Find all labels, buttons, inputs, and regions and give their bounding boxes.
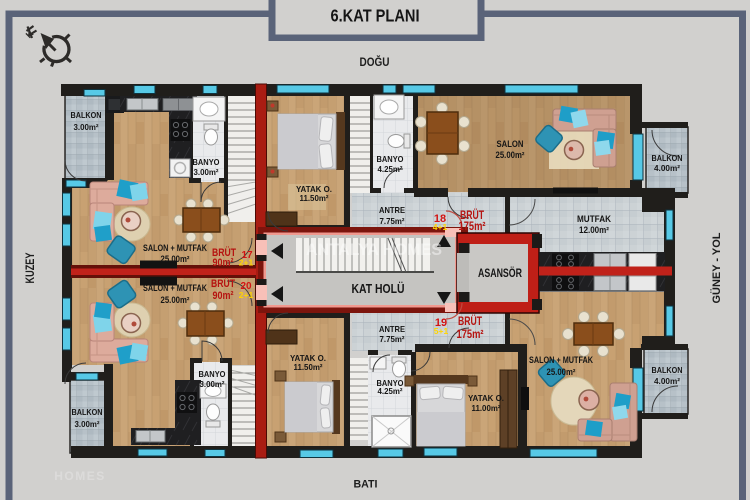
svg-text:ANTRE: ANTRE [379, 324, 405, 334]
svg-text:BANYO: BANYO [199, 369, 226, 379]
svg-text:90m²: 90m² [213, 257, 234, 269]
svg-text:3.00m²: 3.00m² [74, 123, 99, 132]
svg-text:BALKON: BALKON [652, 154, 683, 163]
svg-text:4+1: 4+1 [433, 222, 448, 232]
svg-text:ANTALYA HOMES: ANTALYA HOMES [306, 241, 442, 259]
svg-text:7.75m²: 7.75m² [380, 216, 405, 226]
svg-text:BRÜT: BRÜT [458, 313, 482, 328]
svg-text:HOMES: HOMES [54, 469, 106, 483]
svg-text:3.00m²: 3.00m² [194, 167, 219, 177]
svg-text:SALON + MUTFAK: SALON + MUTFAK [143, 243, 207, 253]
svg-text:BALKON: BALKON [71, 111, 102, 120]
svg-text:SALON + MUTFAK: SALON + MUTFAK [529, 355, 593, 365]
svg-text:KUZEY: KUZEY [25, 252, 37, 283]
svg-text:BALKON: BALKON [72, 408, 103, 417]
svg-text:ANTRE: ANTRE [379, 205, 405, 215]
svg-text:5+1: 5+1 [434, 326, 449, 336]
svg-text:2+1: 2+1 [239, 258, 254, 268]
svg-text:BANYO: BANYO [193, 157, 220, 167]
svg-text:GÜNEY - YOL: GÜNEY - YOL [710, 232, 723, 303]
svg-text:BANYO: BANYO [377, 154, 404, 164]
svg-text:175m²: 175m² [459, 219, 486, 233]
svg-text:3.00m²: 3.00m² [200, 379, 225, 389]
svg-text:4.00m²: 4.00m² [654, 377, 680, 386]
svg-text:DOĞU: DOĞU [360, 54, 390, 69]
svg-text:MUTFAK: MUTFAK [577, 214, 611, 224]
svg-text:11.00m²: 11.00m² [472, 403, 501, 413]
svg-text:25.00m²: 25.00m² [161, 254, 190, 264]
svg-text:25.00m²: 25.00m² [161, 295, 190, 305]
svg-text:25.00m²: 25.00m² [547, 367, 576, 377]
svg-text:11.50m²: 11.50m² [300, 193, 329, 203]
svg-text:90m²: 90m² [213, 290, 234, 302]
svg-text:6.KAT PLANI: 6.KAT PLANI [331, 6, 420, 26]
svg-text:4.00m²: 4.00m² [654, 164, 680, 173]
svg-text:12.00m²: 12.00m² [579, 225, 609, 235]
svg-text:BALKON: BALKON [652, 366, 683, 375]
svg-text:BATI: BATI [354, 479, 378, 491]
svg-text:7.75m²: 7.75m² [380, 334, 405, 344]
svg-text:SALON + MUTFAK: SALON + MUTFAK [143, 283, 207, 293]
svg-text:ASANSÖR: ASANSÖR [478, 267, 523, 280]
svg-text:SALON: SALON [497, 139, 524, 149]
svg-text:4.25m²: 4.25m² [378, 386, 403, 396]
svg-text:3.00m²: 3.00m² [75, 420, 100, 429]
svg-text:BRÜT: BRÜT [211, 277, 235, 290]
svg-text:2+1: 2+1 [239, 290, 254, 300]
svg-text:25.00m²: 25.00m² [496, 150, 525, 160]
svg-text:YATAK O.: YATAK O. [468, 393, 504, 403]
svg-text:4.25m²: 4.25m² [378, 164, 403, 174]
svg-text:175m²: 175m² [457, 327, 484, 341]
svg-text:11.50m²: 11.50m² [294, 362, 323, 372]
svg-text:KAT HOLÜ: KAT HOLÜ [352, 281, 405, 296]
